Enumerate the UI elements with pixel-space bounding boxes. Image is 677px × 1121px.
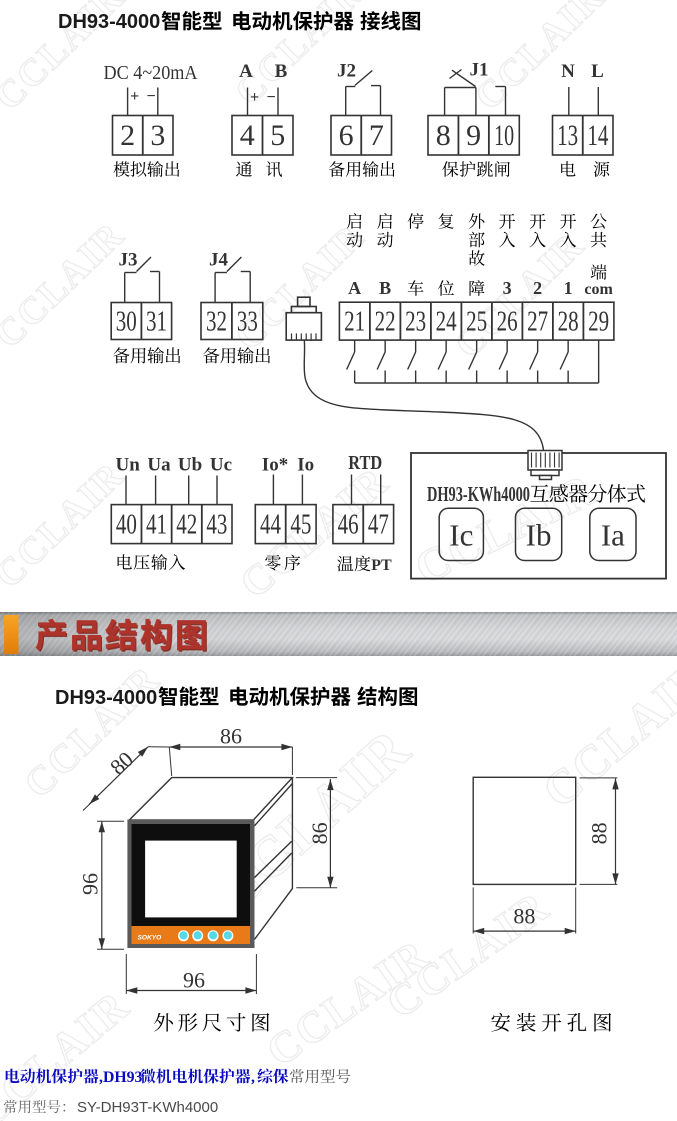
svg-text:J2: J2 [337, 61, 356, 82]
svg-text:J3: J3 [119, 250, 138, 271]
svg-text:SY-DH93T-KWh4000: SY-DH93T-KWh4000 [77, 1099, 218, 1116]
svg-text:−: − [146, 88, 155, 105]
svg-text:Uc: Uc [210, 455, 232, 476]
svg-text:Un: Un [116, 455, 141, 476]
svg-text:J1: J1 [470, 60, 489, 81]
svg-text:CCLAIR: CCLAIR [467, 0, 613, 118]
svg-text:L: L [591, 61, 604, 82]
svg-text:6: 6 [339, 119, 354, 152]
svg-text:DH93-4000: DH93-4000 [58, 11, 160, 33]
svg-text:DC 4~20mA: DC 4~20mA [104, 62, 198, 84]
svg-text:41: 41 [146, 509, 167, 541]
svg-text:−: − [266, 89, 275, 106]
svg-text:DH93-4000: DH93-4000 [55, 687, 157, 709]
svg-text:7: 7 [369, 119, 384, 152]
svg-text:23: 23 [405, 306, 426, 338]
svg-text:PT: PT [371, 557, 392, 574]
svg-text:J4: J4 [209, 250, 229, 271]
svg-text:Io*: Io* [262, 455, 288, 476]
svg-text:2: 2 [533, 278, 542, 298]
svg-text:+: + [130, 88, 139, 105]
svg-text:Ib: Ib [526, 518, 552, 553]
svg-text:Ia: Ia [601, 518, 625, 553]
svg-text:42: 42 [176, 509, 197, 541]
svg-text:,DH93: ,DH93 [99, 1069, 143, 1086]
svg-text:46: 46 [338, 509, 359, 541]
svg-text:40: 40 [116, 509, 137, 541]
svg-text:+: + [250, 89, 259, 106]
svg-text:RTD: RTD [348, 452, 382, 474]
svg-text:4: 4 [240, 119, 255, 152]
svg-text:88: 88 [587, 822, 612, 844]
svg-text:44: 44 [260, 509, 281, 541]
svg-text:10: 10 [494, 119, 514, 152]
svg-text:13: 13 [557, 119, 578, 152]
svg-text:30: 30 [116, 306, 137, 338]
svg-text:96: 96 [78, 873, 103, 895]
svg-text:1: 1 [564, 278, 573, 298]
svg-text:3: 3 [150, 119, 165, 152]
svg-text:CCLAIR: CCLAIR [533, 648, 677, 818]
svg-text:33: 33 [237, 306, 258, 338]
svg-text:96: 96 [183, 968, 205, 993]
svg-text:25: 25 [466, 306, 487, 338]
svg-text:CCLAIR: CCLAIR [0, 454, 133, 597]
svg-text:86: 86 [307, 822, 332, 844]
svg-text:26: 26 [497, 306, 518, 338]
svg-text:9: 9 [466, 119, 481, 152]
svg-text:2: 2 [120, 119, 135, 152]
svg-text:N: N [561, 61, 575, 82]
svg-text:A: A [348, 278, 361, 298]
svg-text:A: A [239, 61, 253, 82]
svg-text:22: 22 [375, 306, 396, 338]
svg-text:3: 3 [503, 278, 512, 298]
svg-text:28: 28 [558, 306, 579, 338]
svg-text:45: 45 [290, 509, 311, 541]
svg-text:Ub: Ub [178, 455, 202, 476]
svg-text:Ic: Ic [449, 518, 473, 553]
svg-text:B: B [379, 278, 391, 298]
svg-text:DH93-KWh4000: DH93-KWh4000 [427, 482, 530, 506]
svg-text:B: B [275, 61, 288, 82]
svg-text:43: 43 [206, 509, 227, 541]
svg-text:31: 31 [146, 306, 167, 338]
svg-text:27: 27 [527, 306, 548, 338]
svg-text:Ua: Ua [147, 455, 171, 476]
svg-text:14: 14 [587, 119, 608, 152]
svg-text:88: 88 [513, 904, 535, 929]
svg-text:CCLAIR: CCLAIR [15, 656, 168, 806]
svg-text:SOKYO: SOKYO [138, 935, 163, 942]
svg-text:80: 80 [105, 746, 138, 779]
svg-text:Io: Io [297, 455, 314, 476]
svg-text:32: 32 [206, 306, 227, 338]
svg-text:21: 21 [344, 306, 365, 338]
svg-text:86: 86 [220, 724, 242, 749]
svg-text:5: 5 [270, 119, 285, 152]
svg-text:CCLAIR: CCLAIR [0, 214, 133, 357]
svg-text:,: , [251, 1069, 255, 1086]
svg-text:8: 8 [436, 119, 451, 152]
svg-text:com: com [584, 281, 613, 298]
svg-text:24: 24 [436, 306, 457, 338]
svg-text:29: 29 [588, 306, 609, 338]
svg-text:47: 47 [368, 509, 389, 541]
